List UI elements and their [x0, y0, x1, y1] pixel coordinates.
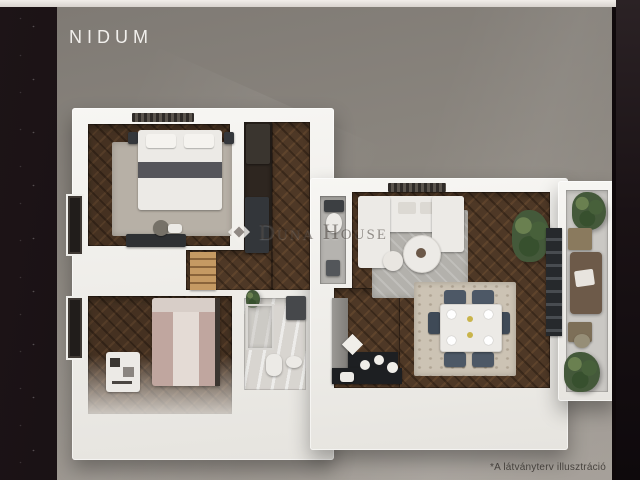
ladder-shelf [190, 252, 216, 290]
pillow [146, 134, 176, 148]
trolley-item [123, 367, 134, 377]
table-decor [467, 332, 473, 338]
wc-sink [326, 260, 340, 276]
nightstand [128, 132, 138, 144]
dining-chair [472, 290, 494, 305]
kitchen-bowl [360, 360, 370, 370]
window [68, 196, 82, 254]
pouf [574, 334, 590, 348]
bed-frame [215, 298, 220, 386]
toilet [266, 354, 282, 376]
plant [564, 352, 600, 392]
trolley-item [112, 381, 132, 384]
coffee-table [403, 235, 441, 273]
plate [484, 336, 493, 345]
brand-logo: NIDUM [69, 27, 153, 48]
table-decor [467, 316, 473, 322]
bathroom-vanity [286, 296, 306, 320]
window [68, 298, 82, 358]
kitchen-appliance [340, 372, 354, 382]
watermark: Duna House [227, 219, 388, 245]
dining-chair [444, 290, 466, 305]
throw-blanket [574, 269, 595, 287]
plate [484, 310, 493, 319]
screen-content: NIDUM [57, 7, 612, 480]
balcony-side-table [568, 228, 592, 250]
dining-table [440, 304, 502, 352]
bathroom-sink [286, 356, 302, 368]
trolley-item [110, 358, 120, 367]
shower [246, 304, 274, 350]
side-table [383, 251, 403, 271]
balcony-window-wall [546, 228, 562, 336]
wardrobe [246, 124, 270, 164]
pillow [152, 298, 220, 312]
utility-trolley [106, 352, 140, 392]
glare-strip [0, 0, 640, 7]
wc-cistern [324, 200, 344, 212]
bed-double [152, 298, 220, 386]
room-entry-hall-floor [272, 122, 310, 290]
bed-double [138, 130, 222, 210]
bed-runner [173, 312, 199, 386]
kitchen-bowl [374, 355, 384, 365]
disclaimer-text: *A látványterv illusztráció [490, 462, 606, 473]
plate [447, 310, 456, 319]
radiator [388, 183, 446, 192]
sofa-cushion [398, 202, 416, 214]
watermark-text: Duna House [259, 219, 388, 245]
nightstand [224, 132, 234, 144]
desk [126, 234, 186, 247]
radiator [132, 113, 194, 122]
plant [572, 192, 606, 230]
dining-chair [444, 352, 466, 367]
plant [512, 210, 550, 262]
dining-chair [472, 352, 494, 367]
bed-runner [138, 162, 222, 178]
desk-papers [168, 224, 182, 233]
coffee-table-tray [416, 248, 426, 258]
photo-of-screen: NIDUM [0, 0, 640, 480]
duna-house-diamond-icon [227, 220, 251, 244]
photo-frame-right [616, 0, 640, 480]
pillow [184, 134, 214, 148]
desk-chair [153, 220, 169, 236]
kitchen-sink [387, 362, 398, 373]
balcony-sofa [570, 252, 602, 314]
plate [447, 336, 456, 345]
